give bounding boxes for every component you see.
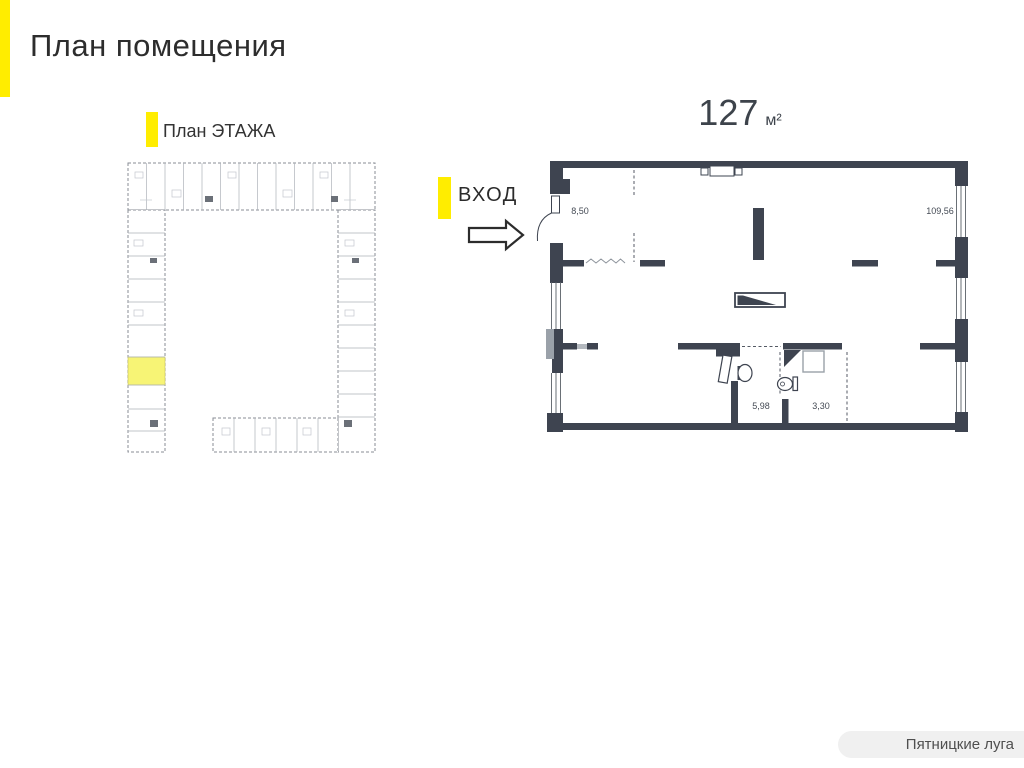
stairwell-marks xyxy=(150,196,359,427)
unit-area-value: 127 xyxy=(698,92,758,133)
floor-plan-accent-bar xyxy=(146,112,158,147)
bath-door-leaf xyxy=(718,355,732,383)
sink-icon xyxy=(738,365,753,382)
highlighted-unit[interactable] xyxy=(128,357,165,385)
entrance-arrow-icon xyxy=(466,218,526,252)
interior-door-gap xyxy=(577,344,587,349)
top-wall-equipment xyxy=(701,166,742,176)
brand-badge: Пятницкие луга xyxy=(838,731,1024,758)
entrance-accent-bar xyxy=(438,177,451,219)
entrance-door-leaf xyxy=(552,196,560,213)
room-label-main: 109,56 xyxy=(926,206,954,216)
room-label-left-wc: 5,98 xyxy=(752,401,770,411)
entrance-label: ВХОД xyxy=(458,184,518,207)
toilet-icon xyxy=(778,377,798,391)
shower-tray-icon xyxy=(803,351,824,372)
wall-pilaster xyxy=(546,329,554,359)
page-title: План помещения xyxy=(30,28,287,64)
floor-overview-plan xyxy=(125,160,380,455)
room-label-right-wc: 3,30 xyxy=(812,401,830,411)
wavy-opening-line xyxy=(586,259,625,263)
room-label-hall: 8,50 xyxy=(571,206,589,216)
page-accent-bar xyxy=(0,0,10,97)
brand-name: Пятницкие луга xyxy=(906,736,1024,753)
floor-plan-label: План ЭТАЖА xyxy=(163,121,275,142)
slide: План помещения План ЭТАЖА xyxy=(0,0,1024,768)
counter xyxy=(735,293,785,307)
unit-area: 127м² xyxy=(640,92,840,134)
unit-area-unit: м² xyxy=(765,112,781,129)
interior-walls xyxy=(562,208,878,425)
unit-floor-plan: 8,50 109,56 5,98 3,30 xyxy=(535,150,980,445)
entrance-door-arc xyxy=(537,213,551,241)
unit-interior-detail xyxy=(134,172,356,435)
wc-door-leaf xyxy=(784,350,801,367)
